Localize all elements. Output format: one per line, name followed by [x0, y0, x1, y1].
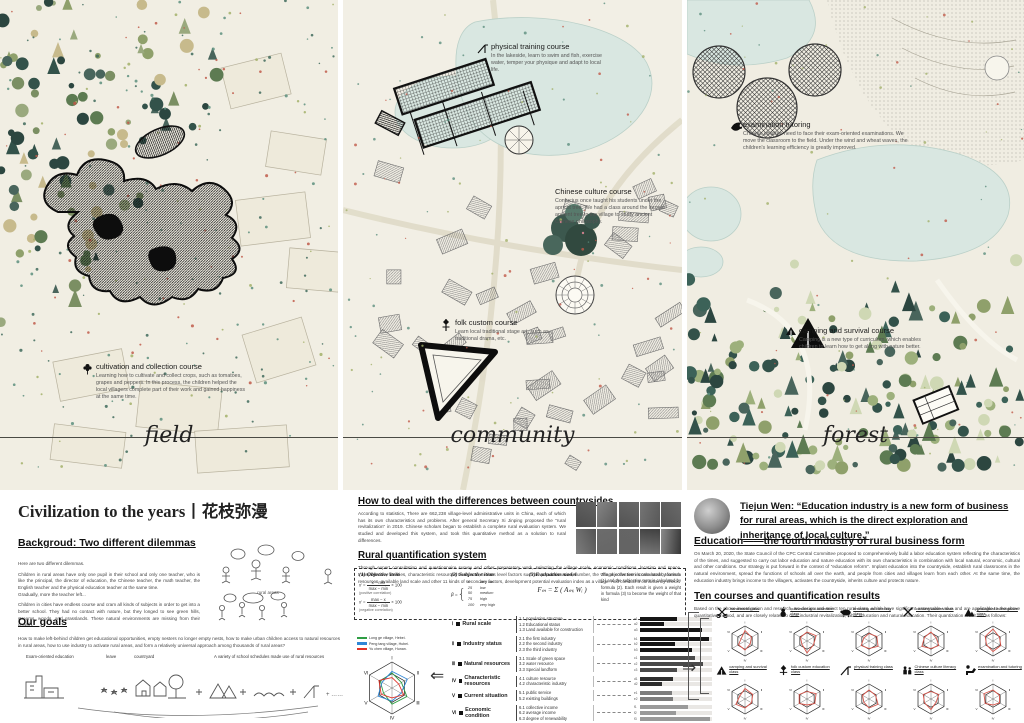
- panel-label-field: field: [0, 423, 338, 448]
- quant-category: ⅣCharacteristic resources: [452, 675, 516, 687]
- svg-text:Ⅵ: Ⅵ: [789, 688, 792, 692]
- svg-text:Ⅱ: Ⅱ: [761, 688, 763, 692]
- photo-thumbnail: [597, 529, 617, 554]
- dashed-connector: [597, 712, 631, 713]
- svg-text:Ⅴ: Ⅴ: [364, 701, 368, 707]
- svg-text:Ⅲ: Ⅲ: [1008, 707, 1010, 711]
- course-radar-chart: ⅠⅡⅢⅣⅤⅥ: [911, 678, 951, 720]
- svg-text:Ⅲ: Ⅲ: [822, 649, 824, 653]
- svg-text:Ⅲ: Ⅲ: [946, 707, 948, 711]
- svg-text:Ⅵ: Ⅵ: [975, 688, 978, 692]
- annotation-chinese-culture: Chinese culture course Confucius once ta…: [555, 187, 682, 226]
- arrow-left-icon: ⇐: [430, 666, 444, 686]
- information-board: Civilization to the years丨花枝弥漫 Backgroud…: [0, 490, 1024, 723]
- svg-text:Ⅰ: Ⅰ: [807, 621, 808, 625]
- quant-bars: f1f2f3: [634, 705, 712, 722]
- svg-text:Ⅱ: Ⅱ: [885, 630, 887, 634]
- svg-text:Ⅳ: Ⅳ: [390, 716, 395, 722]
- course-radar-chart: ⅠⅡⅢⅣⅤⅥ: [973, 678, 1013, 720]
- dashed-connector: [597, 624, 631, 625]
- bar-fill: [640, 677, 673, 681]
- subjective-item-label: (2) Subjective item: [451, 572, 525, 578]
- annotation-body: Camping is a new type of curriculum, whi…: [799, 337, 933, 351]
- svg-text:Ⅴ: Ⅴ: [728, 649, 731, 653]
- svg-text:Ⅱ: Ⅱ: [947, 688, 949, 692]
- course-label: Chinese culture literacy class: [915, 664, 960, 674]
- slide-icon: [840, 664, 852, 676]
- course-card: cooking cuisine classⅠⅡⅢⅣⅤⅥ: [902, 606, 960, 662]
- bar-fill: [640, 705, 688, 709]
- background-paragraph-2: Children in rural areas have only one pu…: [18, 572, 200, 592]
- totem-icon: [441, 318, 451, 332]
- goals-block: Our goals How to make left-behind childr…: [18, 616, 344, 718]
- panel-label-community: community: [343, 423, 682, 448]
- square-bullet-icon: [456, 622, 460, 626]
- course-label: cultivation and collection class: [790, 606, 836, 616]
- evaluation-model-block: (3)Evaluation model Fₘ = Σ ( Aₘᵢ Wᵢ ): [527, 569, 597, 619]
- people-icon: [902, 664, 913, 676]
- course-head: geological investigation class: [964, 606, 1022, 618]
- square-bullet-icon: [458, 694, 462, 698]
- goals-heading: Our goals: [18, 616, 344, 628]
- map-panel-community: physical training course In the lakeside…: [343, 0, 682, 490]
- svg-text:Ⅰ: Ⅰ: [869, 679, 870, 683]
- evaluation-model-label: (3)Evaluation model: [529, 572, 595, 578]
- svg-text:Ⅱ: Ⅱ: [947, 630, 949, 634]
- dilemma-sketches: rural areas: [208, 542, 340, 622]
- course-label: breeding and feeding class: [853, 606, 898, 616]
- village-radar-chart: ⅠⅡⅢⅣⅤⅥ: [356, 654, 428, 722]
- quant-category: ⅢNatural resources: [452, 661, 516, 667]
- svg-text:Ⅴ: Ⅴ: [852, 707, 855, 711]
- legend-item: Peng tang village, Hubei.: [357, 642, 409, 646]
- svg-text:Ⅰ: Ⅰ: [931, 679, 932, 683]
- objective-item-block: (1) Objective item x′ = x − minmax − min…: [355, 569, 449, 619]
- bar-fill: [640, 642, 675, 646]
- course-card: camping and survival classⅠⅡⅢⅣⅤⅥ: [716, 664, 774, 720]
- svg-text:Ⅱ: Ⅱ: [885, 688, 887, 692]
- quant-group: ⅢNatural resources3.1 Scale of green spa…: [452, 656, 712, 673]
- square-bullet-icon: [459, 679, 462, 683]
- svg-text:Ⅰ: Ⅰ: [391, 656, 392, 662]
- annotation-title: folk custom course: [455, 318, 575, 328]
- svg-text:Ⅳ: Ⅳ: [806, 717, 809, 721]
- background-paragraph-1: Here are two different dilemmas.: [18, 561, 200, 568]
- goals-diagram: Exam-oriented education leave countryard…: [18, 654, 344, 718]
- tent-icon: [785, 326, 797, 336]
- course-card: physical training classⅠⅡⅢⅣⅤⅥ: [840, 664, 898, 720]
- course-radar-chart: ⅠⅡⅢⅣⅤⅥ: [725, 620, 765, 662]
- svg-text:Ⅵ: Ⅵ: [851, 688, 854, 692]
- desk-icon: [964, 664, 976, 676]
- bar-fill: [640, 691, 672, 695]
- quant-subitem-label: 3.3 Special landform: [519, 667, 593, 673]
- bird-icon: [729, 120, 742, 131]
- bar-fill: [640, 668, 677, 672]
- quant-group: ⅡIndustry status2.1 the first industry2.…: [452, 636, 712, 653]
- annotation-title: Chinese culture course: [555, 187, 682, 197]
- svg-text:Ⅲ: Ⅲ: [946, 649, 948, 653]
- course-head: folk custom education class: [778, 664, 836, 676]
- annotation-body: Learning how to cultivate and collect cr…: [96, 373, 246, 402]
- svg-text:Ⅳ: Ⅳ: [744, 659, 747, 663]
- course-radar-chart: ⅠⅡⅢⅣⅤⅥ: [973, 620, 1013, 662]
- round-stage: [556, 276, 594, 314]
- quant-subitem-label: 6.3 degree of renewability: [519, 716, 593, 722]
- svg-text:Ⅱ: Ⅱ: [1009, 688, 1011, 692]
- education-paragraph: On March 20, 2020, the State Council of …: [694, 551, 1020, 584]
- poster-title: Civilization to the years丨花枝弥漫: [18, 498, 346, 522]
- course-radar-chart: ⅠⅡⅢⅣⅤⅥ: [787, 678, 827, 720]
- field-map-illustration: [0, 0, 338, 490]
- village-photo-grid: [576, 502, 682, 554]
- svg-text:Ⅱ: Ⅱ: [1009, 630, 1011, 634]
- course-head: examination and tutoring: [964, 664, 1022, 676]
- svg-text:Ⅵ: Ⅵ: [789, 630, 792, 634]
- quant-subitem-label: 4.2 characteristic industry: [519, 681, 593, 687]
- svg-text:Ⅲ: Ⅲ: [884, 649, 886, 653]
- photo-thumbnail: [661, 502, 681, 527]
- radar-legend: Long ge village, Hebei.Peng tang village…: [357, 636, 409, 653]
- course-head: camping and survival class: [716, 664, 774, 676]
- bar-fill: [640, 648, 692, 652]
- dashed-connector: [597, 681, 631, 682]
- course-head: breeding and feeding class: [840, 606, 898, 618]
- svg-text:Ⅲ: Ⅲ: [822, 707, 824, 711]
- svg-text:Ⅰ: Ⅰ: [807, 679, 808, 683]
- course-card: cultivation and collection classⅠⅡⅢⅣⅤⅥ: [778, 606, 836, 662]
- bar-track: [640, 697, 712, 701]
- course-radar-chart: ⅠⅡⅢⅣⅤⅥ: [787, 620, 827, 662]
- portrait-photo: [694, 498, 730, 534]
- objective-item-label: (1) Objective item: [359, 572, 445, 578]
- quant-subitems: 3.1 Scale of green space3.2 water resour…: [516, 656, 594, 673]
- course-radar-chart: ⅠⅡⅢⅣⅤⅥ: [911, 620, 951, 662]
- course-radar-chart: ⅠⅡⅢⅣⅤⅥ: [849, 620, 889, 662]
- quant-group: ⅠRural scale1.1 population structure1.2 …: [452, 616, 712, 633]
- course-label: cooking cuisine class: [916, 606, 954, 611]
- quant-category: ⅤCurrent situation: [452, 693, 516, 699]
- subjective-scale-row: 100very high: [468, 603, 495, 609]
- course-head: cooking cuisine class: [902, 606, 960, 618]
- svg-text:Ⅱ: Ⅱ: [417, 671, 419, 677]
- subjective-scale: 0very low25low50medium75high100very high: [468, 580, 495, 608]
- svg-text:Ⅰ: Ⅰ: [745, 679, 746, 683]
- bar-track: [640, 717, 712, 721]
- map-panel-field: cultivation and collection course Learni…: [0, 0, 338, 490]
- photo-thumbnail: [576, 502, 596, 527]
- photo-thumbnail: [661, 529, 681, 554]
- bar-fill: [640, 617, 677, 621]
- course-card: Chinese culture literacy classⅠⅡⅢⅣⅤⅥ: [902, 664, 960, 720]
- bar-fill: [640, 682, 662, 686]
- goal-caption-countryard: countryard: [134, 654, 154, 659]
- svg-text:Ⅳ: Ⅳ: [744, 717, 747, 721]
- svg-text:Ⅱ: Ⅱ: [761, 630, 763, 634]
- svg-text:Ⅴ: Ⅴ: [790, 707, 793, 711]
- svg-text:Ⅵ: Ⅵ: [727, 688, 730, 692]
- legend-swatch: [357, 648, 367, 651]
- svg-text:Ⅳ: Ⅳ: [806, 659, 809, 663]
- svg-text:Ⅵ: Ⅵ: [851, 630, 854, 634]
- quant-subitems: 4.1 culture resource4.2 characteristic i…: [516, 676, 594, 687]
- svg-text:Ⅲ: Ⅲ: [884, 707, 886, 711]
- svg-text:Ⅱ: Ⅱ: [823, 630, 825, 634]
- svg-text:Ⅲ: Ⅲ: [1008, 649, 1010, 653]
- pig-icon: [840, 606, 851, 618]
- annotation-title: cultivation and collection course: [96, 362, 256, 372]
- course-label: physical training class: [854, 664, 893, 669]
- svg-text:Ⅴ: Ⅴ: [728, 707, 731, 711]
- bar-row: e2: [634, 696, 712, 702]
- course-label: examination and tutoring: [978, 664, 1022, 669]
- svg-text:Ⅵ: Ⅵ: [727, 630, 730, 634]
- course-radar-chart: ⅠⅡⅢⅣⅤⅥ: [725, 678, 765, 720]
- quant-subitems: 2.1 the first industry2.2 the second ind…: [516, 636, 594, 653]
- quant-subitems: 5.1 public service5.2 existing buildings: [516, 690, 594, 701]
- bar-row: f3: [634, 716, 712, 722]
- goal-more-ellipsis: + ……: [326, 692, 343, 698]
- photo-thumbnail: [597, 502, 617, 527]
- svg-text:Ⅰ: Ⅰ: [993, 621, 994, 625]
- square-bullet-icon: [457, 642, 461, 646]
- quant-subitems: 6.1 collective income6.2 average income6…: [516, 705, 594, 722]
- scissors-icon: [716, 606, 728, 618]
- course-card: breeding and feeding classⅠⅡⅢⅣⅤⅥ: [840, 606, 898, 662]
- quant-subitem-label: 5.2 existing buildings: [519, 696, 593, 702]
- bracket-outer: [688, 612, 699, 700]
- goals-sketch-row: + ……: [18, 662, 344, 718]
- photo-thumbnail: [619, 529, 639, 554]
- annotation-body: In the lakeside, learn to swim and fish,…: [491, 53, 609, 74]
- svg-text:Ⅴ: Ⅴ: [914, 649, 917, 653]
- panel-label-forest: forest: [687, 423, 1024, 448]
- svg-text:Ⅰ: Ⅰ: [869, 621, 870, 625]
- annotation-examination: examination tutoring Chinese children ne…: [743, 120, 915, 152]
- annotation-body: Learn local traditional stage art, such …: [455, 329, 559, 343]
- mountain-icon: [964, 606, 975, 618]
- quant-category: ⅡIndustry status: [452, 641, 516, 647]
- subjective-item-block: (2) Subjective item β = { 0very low25low…: [449, 569, 527, 619]
- svg-text:Ⅳ: Ⅳ: [930, 659, 933, 663]
- quant-subitem-label: 2.3 the third industry: [519, 647, 593, 653]
- svg-text:Ⅳ: Ⅳ: [868, 659, 871, 663]
- legend-swatch: [357, 637, 367, 640]
- quant-category: ⅥEconomic condition: [452, 707, 516, 719]
- quant-group: ⅣCharacteristic resources4.1 culture res…: [452, 675, 712, 687]
- annotation-title: examination tutoring: [743, 120, 915, 130]
- annotation-title: physical training course: [491, 42, 631, 52]
- quantification-table: ⅠRural scale1.1 population structure1.2 …: [452, 616, 712, 723]
- quant-group: ⅥEconomic condition6.1 collective income…: [452, 705, 712, 722]
- quant-group: ⅤCurrent situation5.1 public service5.2 …: [452, 690, 712, 701]
- svg-text:Ⅲ: Ⅲ: [416, 701, 419, 707]
- bracket-inner: [700, 618, 709, 694]
- design-poster: cultivation and collection course Learni…: [0, 0, 1024, 723]
- bar-fill: [640, 697, 673, 701]
- svg-text:Ⅴ: Ⅴ: [976, 649, 979, 653]
- photo-thumbnail: [619, 502, 639, 527]
- bar-track: [640, 711, 712, 715]
- svg-text:Ⅴ: Ⅴ: [914, 707, 917, 711]
- svg-text:Ⅴ: Ⅴ: [790, 649, 793, 653]
- course-head: physical training class: [840, 664, 898, 676]
- bar-fill: [640, 711, 676, 715]
- formula-note: The objective term is calculated by form…: [597, 569, 685, 619]
- education-heading: Education——the fourth industry of rural …: [694, 536, 1022, 547]
- bar-track: [640, 705, 712, 709]
- photo-thumbnail: [640, 529, 660, 554]
- annotation-folk-custom: folk custom course Learn local tradition…: [455, 318, 575, 343]
- quant-subitems: 1.1 population structure1.2 Educational …: [516, 616, 594, 633]
- svg-text:Ⅵ: Ⅵ: [913, 688, 916, 692]
- bar-fill: [640, 717, 710, 721]
- course-head: cultivation and collection class: [778, 606, 836, 618]
- bar-fill: [640, 622, 664, 626]
- course-head: Chinese culture literacy class: [902, 664, 960, 676]
- svg-text:Ⅳ: Ⅳ: [930, 717, 933, 721]
- goal-caption-variety: A variety of school schedules made use o…: [214, 654, 324, 659]
- ten-courses-heading: Ten courses and quantification results: [694, 591, 1022, 602]
- annotation-camping: camping and survival course Camping is a…: [799, 326, 949, 351]
- course-card: folk custom education classⅠⅡⅢⅣⅤⅥ: [778, 664, 836, 720]
- totem-icon: [778, 664, 789, 676]
- course-radar-chart: ⅠⅡⅢⅣⅤⅥ: [849, 678, 889, 720]
- forest-map-illustration: [687, 0, 1024, 490]
- course-card: geological investigation classⅠⅡⅢⅣⅤⅥ: [964, 606, 1022, 662]
- pond-small: [687, 187, 741, 241]
- dashed-connector: [597, 695, 631, 696]
- photo-thumbnail: [640, 502, 660, 527]
- annotation-body: Confucius once taught his students under…: [555, 198, 673, 227]
- map-panel-forest: examination tutoring Chinese children ne…: [687, 0, 1024, 490]
- annotation-cultivation-course: cultivation and collection course Learni…: [96, 362, 256, 401]
- svg-text:Ⅳ: Ⅳ: [992, 717, 995, 721]
- goal-caption-leave: leave: [106, 654, 116, 659]
- course-label: camping and survival class: [729, 664, 774, 674]
- slide-icon: [477, 42, 489, 54]
- annotation-physical-training: physical training course In the lakeside…: [491, 42, 631, 74]
- svg-text:Ⅴ: Ⅴ: [976, 707, 979, 711]
- photo-thumbnail: [576, 529, 596, 554]
- gourd-icon: [778, 606, 788, 618]
- svg-text:Ⅴ: Ⅴ: [852, 649, 855, 653]
- svg-text:Ⅰ: Ⅰ: [745, 621, 746, 625]
- tent-icon: [716, 664, 727, 676]
- square-bullet-icon: [459, 711, 463, 715]
- course-label: geological investigation class: [977, 606, 1022, 616]
- svg-text:Ⅲ: Ⅲ: [760, 649, 762, 653]
- course-card: handmade classⅠⅡⅢⅣⅤⅥ: [716, 606, 774, 662]
- differences-paragraph: According to statistics, There are 662,2…: [358, 511, 566, 544]
- bar-row: f1: [634, 705, 712, 711]
- dashed-connector: [597, 663, 631, 664]
- svg-text:Ⅱ: Ⅱ: [823, 688, 825, 692]
- courses-grid: handmade classⅠⅡⅢⅣⅤⅥ cultivation and col…: [716, 606, 1024, 722]
- legend-swatch: [357, 642, 367, 645]
- legend-item: Long ge village, Hebei.: [357, 636, 409, 640]
- square-bullet-icon: [458, 662, 462, 666]
- svg-text:Ⅳ: Ⅳ: [992, 659, 995, 663]
- course-card: examination and tutoringⅠⅡⅢⅣⅤⅥ: [964, 664, 1022, 720]
- dashed-connector: [597, 644, 631, 645]
- legend-item: Yu chen village, Hunan.: [357, 647, 409, 651]
- svg-text:Ⅵ: Ⅵ: [364, 671, 369, 677]
- bar-row: f2: [634, 710, 712, 716]
- course-label: folk custom education class: [791, 664, 836, 674]
- svg-text:Ⅵ: Ⅵ: [975, 630, 978, 634]
- annotation-title: camping and survival course: [799, 326, 949, 336]
- goals-paragraph: How to make left-behind children get edu…: [18, 636, 340, 649]
- annotation-body: Chinese children need to face their exam…: [743, 131, 911, 152]
- svg-text:Ⅳ: Ⅳ: [868, 717, 871, 721]
- formula-box: (1) Objective item x′ = x − minmax − min…: [354, 568, 686, 620]
- flower-icon: [82, 362, 93, 375]
- course-head: handmade class: [716, 606, 774, 618]
- quant-category: ⅠRural scale: [452, 621, 516, 627]
- svg-text:Ⅲ: Ⅲ: [760, 707, 762, 711]
- course-label: handmade class: [730, 606, 759, 611]
- evaluation-model-formula: Fₘ = Σ ( Aₘᵢ Wᵢ ): [529, 586, 595, 594]
- svg-text:Ⅰ: Ⅰ: [993, 679, 994, 683]
- quant-subitem-label: 1.3 Land available for construction: [519, 627, 593, 633]
- chopsticks-icon: [902, 606, 914, 618]
- goal-caption-exam: Exam-oriented education: [26, 654, 74, 659]
- svg-text:Ⅵ: Ⅵ: [913, 630, 916, 634]
- background-paragraph-3: Gradually, more the teacher left...: [18, 592, 200, 599]
- svg-text:Ⅰ: Ⅰ: [931, 621, 932, 625]
